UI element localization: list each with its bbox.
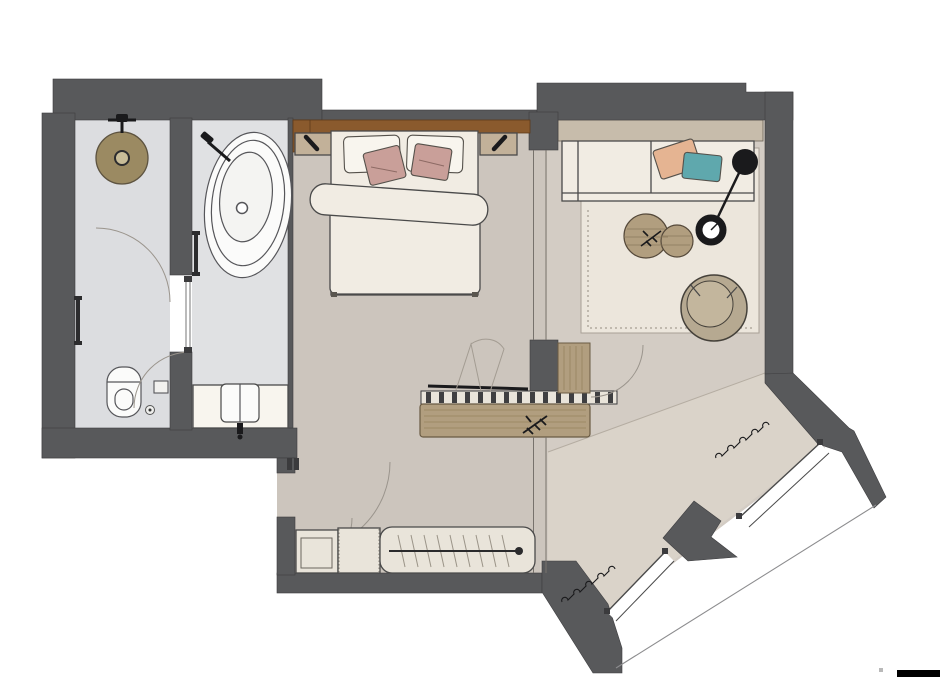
wood-sideboard (420, 404, 590, 437)
scale-bar-main (897, 670, 940, 677)
slat (582, 392, 587, 403)
slat (452, 392, 457, 403)
floor-plan-image (0, 0, 940, 677)
towel-bracket-bottom (74, 341, 82, 345)
toilet-bowl (115, 389, 133, 410)
slat (504, 392, 509, 403)
wood-panel (558, 343, 590, 393)
window-nub-4 (604, 608, 610, 614)
coffee-table-small (661, 225, 693, 257)
armchair (681, 275, 747, 341)
open-cabinet (338, 528, 380, 573)
wall-bathroom-bottom (42, 428, 297, 458)
wall-left (42, 113, 75, 458)
bed-foot-left (331, 292, 337, 297)
slat (556, 392, 561, 403)
towel-bracket-2b (192, 272, 200, 276)
wall-bath-divider-lower (170, 352, 192, 430)
tub-drain (237, 203, 248, 214)
accent-pillow-right (411, 143, 453, 180)
slat (491, 392, 496, 403)
shower-head-center (115, 151, 129, 165)
scale-bar-tick (879, 668, 883, 672)
slat (465, 392, 470, 403)
slat (439, 392, 444, 403)
slat (426, 392, 431, 403)
wall-right (765, 92, 793, 374)
towel-bracket-2a (192, 231, 200, 235)
sink-tap (237, 423, 243, 434)
slat (595, 392, 600, 403)
slat (478, 392, 483, 403)
bed-foot-right (472, 292, 478, 297)
wall-bath-divider-upper (170, 118, 192, 275)
glass-door-panel (186, 280, 190, 348)
floor-drain-dot (149, 409, 152, 412)
wall-entry-upper (277, 458, 295, 473)
bench-slats (426, 392, 613, 403)
slat (530, 392, 535, 403)
entry-door-post-b (294, 458, 299, 470)
window-nub-3 (662, 548, 668, 554)
glass-door-cap-bottom (184, 347, 192, 353)
wall-entry-lower (277, 517, 295, 575)
scale-bar (879, 668, 940, 677)
teal-pillow (682, 152, 723, 182)
wall-stub-desk (530, 340, 558, 393)
floor-lamp-shade (732, 149, 758, 175)
wood-shelf-band (558, 120, 763, 141)
shower-mixer (116, 114, 128, 122)
glass-door-cap-top (184, 276, 192, 282)
wall-top-bathroom (53, 79, 322, 120)
window-nub-1 (817, 439, 823, 445)
slat (517, 392, 522, 403)
slat (543, 392, 548, 403)
wall-bottom (277, 573, 542, 593)
teal-pillow-group (682, 152, 723, 182)
slat (569, 392, 574, 403)
wall-top-living (537, 83, 793, 120)
hanging-rail-end (515, 547, 523, 555)
window-nub-2 (736, 513, 742, 519)
entry-opening-floor (277, 473, 295, 517)
glass-door (184, 276, 192, 353)
wall-thin-bath-bedroom (288, 118, 293, 428)
entry-door-post-a (287, 458, 292, 470)
sink-tap-knob (238, 435, 243, 440)
floor-plan (0, 0, 940, 677)
wall-stub-top-middle (529, 112, 558, 150)
toilet-paper-holder (154, 381, 168, 393)
towel-bracket-top (74, 296, 82, 300)
towel-bar-2 (194, 232, 198, 276)
shelf-band-group (558, 120, 763, 141)
towel-bar (76, 297, 80, 345)
